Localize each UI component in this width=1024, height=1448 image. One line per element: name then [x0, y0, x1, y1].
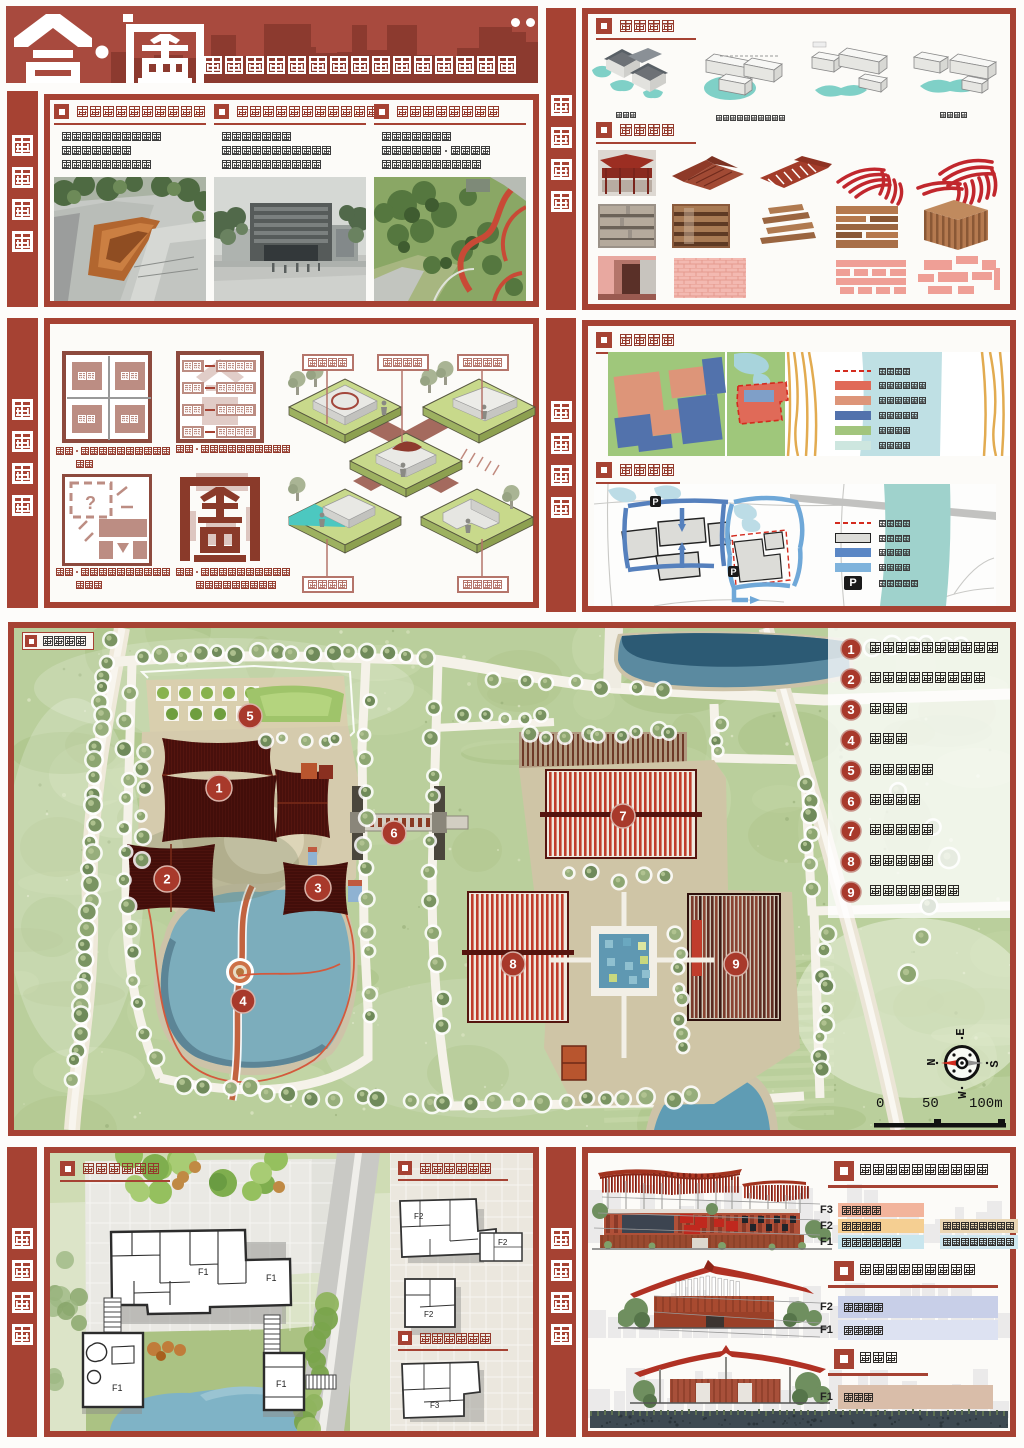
svg-text:F1: F1 [198, 1267, 209, 1277]
svg-text:P: P [731, 567, 737, 577]
svg-text:?: ? [85, 493, 96, 513]
svg-text:F1: F1 [112, 1383, 123, 1393]
svg-text:F2: F2 [424, 1310, 434, 1319]
svg-text:F2: F2 [414, 1212, 424, 1221]
svg-text:P: P [653, 497, 659, 507]
svg-text:F3: F3 [430, 1401, 440, 1410]
svg-text:F1: F1 [266, 1273, 277, 1283]
svg-text:F2: F2 [498, 1238, 508, 1247]
svg-text:F1: F1 [276, 1379, 287, 1389]
